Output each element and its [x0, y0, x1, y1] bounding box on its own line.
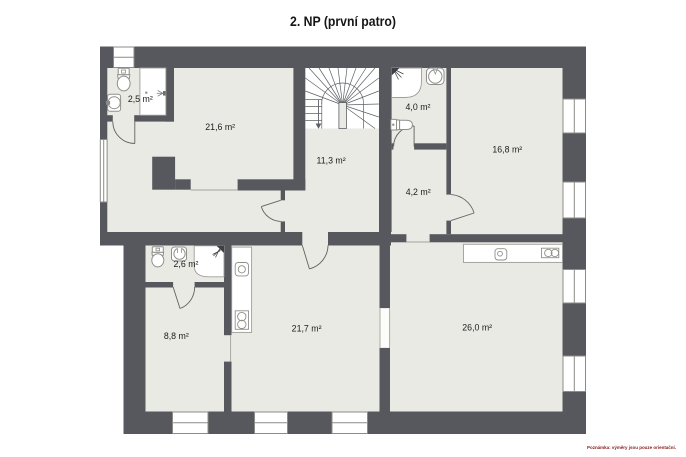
- svg-text:21,6 m²: 21,6 m²: [205, 122, 235, 132]
- svg-text:2,5 m²: 2,5 m²: [128, 94, 153, 104]
- svg-text:4,2 m²: 4,2 m²: [406, 187, 431, 197]
- svg-text:11,3 m²: 11,3 m²: [317, 155, 346, 165]
- svg-text:21,7 m²: 21,7 m²: [292, 324, 322, 334]
- svg-text:2. NP (první patro): 2. NP (první patro): [290, 13, 396, 29]
- svg-text:16,8 m²: 16,8 m²: [492, 144, 522, 154]
- svg-text:2,6 m²: 2,6 m²: [174, 259, 199, 269]
- svg-text:4,0 m²: 4,0 m²: [406, 102, 431, 112]
- svg-text:26,0 m²: 26,0 m²: [462, 322, 492, 332]
- svg-text:8,8 m²: 8,8 m²: [164, 331, 189, 341]
- svg-text:Poznámka: výměry jsou pouze or: Poznámka: výměry jsou pouze orientační.: [587, 445, 676, 450]
